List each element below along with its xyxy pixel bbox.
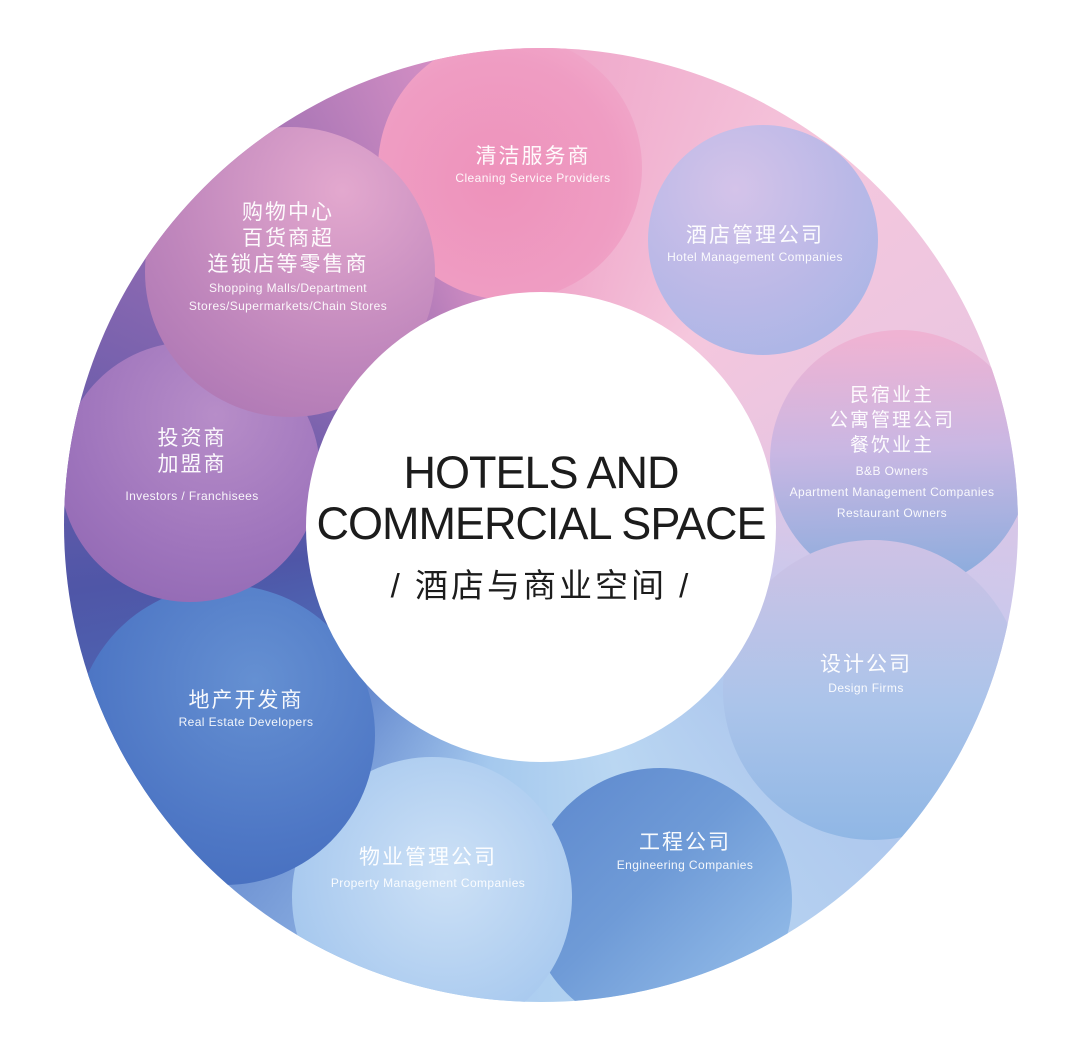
segment-label-design-firms: 设计公司 Design Firms bbox=[666, 652, 1066, 696]
segment-label-real-estate: 地产开发商 Real Estate Developers bbox=[46, 688, 446, 730]
segment-en-line: Cleaning Service Providers bbox=[333, 171, 733, 186]
segment-zh-line: 物业管理公司 bbox=[228, 845, 628, 871]
segment-zh-line: 购物中心 bbox=[88, 200, 488, 226]
segment-label-property-mgmt: 物业管理公司 Property Management Companies bbox=[228, 845, 628, 891]
segment-en-line: Restaurant Owners bbox=[692, 506, 1080, 521]
segment-label-hotel-management: 酒店管理公司 Hotel Management Companies bbox=[555, 223, 955, 265]
segment-en-line: Stores/Supermarkets/Chain Stores bbox=[88, 299, 488, 314]
center-title-line1: HOTELS AND bbox=[403, 447, 678, 498]
segment-zh-line: 公寓管理公司 bbox=[692, 408, 1080, 433]
segment-label-investors: 投资商 加盟商 Investors / Franchisees bbox=[0, 426, 392, 504]
center-subtitle: / 酒店与商业空间 / bbox=[391, 559, 692, 607]
segment-zh-line: 投资商 bbox=[0, 426, 392, 452]
segment-label-shopping-retail: 购物中心 百货商超 连锁店等零售商 Shopping Malls/Departm… bbox=[88, 200, 488, 314]
segment-en-line: Real Estate Developers bbox=[46, 715, 446, 730]
hotels-commercial-space-diagram: HOTELS AND COMMERCIAL SPACE / 酒店与商业空间 / … bbox=[0, 0, 1080, 1047]
segment-zh-line: 地产开发商 bbox=[46, 688, 446, 714]
segment-en-line: Shopping Malls/Department bbox=[88, 281, 488, 296]
segment-zh-line: 民宿业主 bbox=[692, 383, 1080, 408]
segment-zh-line: 设计公司 bbox=[666, 652, 1066, 678]
segment-zh-line: 百货商超 bbox=[88, 226, 488, 252]
segment-zh-line: 连锁店等零售商 bbox=[88, 252, 488, 278]
segment-zh-line: 酒店管理公司 bbox=[555, 223, 955, 249]
segment-en-line: Apartment Management Companies bbox=[692, 485, 1080, 500]
segment-en-line: B&B Owners bbox=[692, 464, 1080, 479]
segment-en-line: Investors / Franchisees bbox=[0, 489, 392, 504]
segment-zh-line: 餐饮业主 bbox=[692, 433, 1080, 458]
segment-en-line: Property Management Companies bbox=[228, 876, 628, 891]
segment-en-line: Hotel Management Companies bbox=[555, 250, 955, 265]
segment-label-cleaning-service: 清洁服务商 Cleaning Service Providers bbox=[333, 144, 733, 186]
segment-zh-line: 加盟商 bbox=[0, 452, 392, 478]
segment-label-bnb-owners: 民宿业主 公寓管理公司 餐饮业主 B&B Owners Apartment Ma… bbox=[692, 383, 1080, 521]
segment-en-line: Design Firms bbox=[666, 681, 1066, 696]
segment-zh-line: 清洁服务商 bbox=[333, 144, 733, 170]
